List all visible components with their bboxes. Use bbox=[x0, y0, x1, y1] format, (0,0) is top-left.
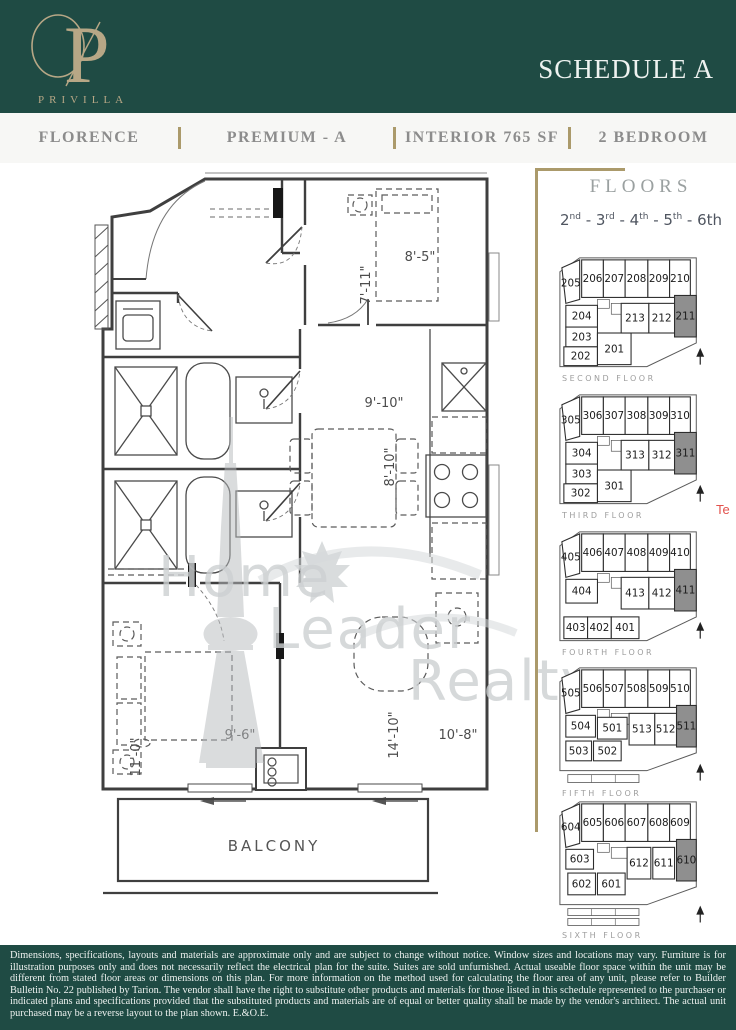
header-banner: P PRIVILLA SCHEDULE A bbox=[0, 0, 736, 113]
unit-number: 504 bbox=[571, 721, 591, 733]
unit-number: 411 bbox=[676, 585, 696, 597]
unit-number: 512 bbox=[656, 724, 676, 736]
unit-number: 305 bbox=[561, 415, 581, 427]
unit-number: 202 bbox=[571, 351, 591, 363]
unit-number: 612 bbox=[629, 858, 649, 870]
unit-number: 609 bbox=[670, 817, 690, 829]
keyplan-svg: 205206207208209210204203202201213212211 bbox=[552, 250, 720, 373]
unit-number: 209 bbox=[649, 273, 669, 285]
unit-number: 204 bbox=[572, 311, 592, 323]
balcony-strip bbox=[568, 909, 639, 916]
unit-number: 606 bbox=[604, 817, 624, 829]
unit-number: 302 bbox=[571, 488, 591, 500]
fireplace-unit bbox=[256, 748, 306, 790]
north-arrow-icon bbox=[696, 622, 704, 631]
unit-number: 510 bbox=[670, 683, 690, 695]
keyplan-svg: 305306307308309310304303302301313312311 bbox=[552, 387, 720, 510]
unit-number: 308 bbox=[627, 410, 647, 422]
spec-bar: FLORENCE PREMIUM - A INTERIOR 765 SF 2 B… bbox=[0, 113, 736, 163]
unit-number: 511 bbox=[677, 721, 697, 733]
unit-number: 206 bbox=[583, 273, 603, 285]
unit-number: 406 bbox=[583, 547, 603, 559]
privilla-logo: P PRIVILLA bbox=[24, 6, 164, 110]
floors-panel: FLOORS 2nd - 3rd - 4th - 5th - 6th 20520… bbox=[548, 166, 734, 946]
unit-number: 401 bbox=[615, 622, 635, 634]
unit-number: 404 bbox=[572, 586, 592, 598]
spec-item-area: INTERIOR 765 SF bbox=[396, 129, 568, 147]
unit-number: 603 bbox=[570, 854, 590, 866]
unit-number: 310 bbox=[670, 410, 690, 422]
unit-number: 301 bbox=[604, 480, 624, 492]
dim-living-width: 10'-8" bbox=[438, 728, 477, 743]
wall-tv bbox=[276, 633, 284, 659]
unit-number: 405 bbox=[561, 552, 581, 564]
unit-number: 402 bbox=[590, 622, 610, 634]
unit-number: 413 bbox=[625, 588, 645, 600]
dim-bedroom2-width: 8'-5" bbox=[405, 250, 436, 265]
keyplan-third-floor: 305306307308309310304303302301313312311 … bbox=[552, 387, 728, 520]
keyplan-svg: 505506507508509510504501503502513512511 bbox=[552, 660, 720, 788]
unit-number: 412 bbox=[652, 588, 672, 600]
unit-number: 502 bbox=[597, 745, 617, 757]
spec-item-series: PREMIUM - A bbox=[181, 129, 393, 147]
north-arrow-icon bbox=[696, 348, 704, 357]
unit-number: 210 bbox=[670, 273, 690, 285]
unit-number: 203 bbox=[572, 331, 592, 343]
unit-number: 505 bbox=[561, 688, 581, 700]
keyplan-fifth-floor: 505506507508509510504501503502513512511 … bbox=[552, 660, 728, 798]
unit-number: 211 bbox=[676, 311, 696, 323]
keyplan-second-floor: 205206207208209210204203202201213212211 … bbox=[552, 250, 728, 383]
unit-number: 311 bbox=[676, 448, 696, 460]
unit-number: 307 bbox=[604, 410, 624, 422]
unit-number: 610 bbox=[677, 855, 697, 867]
unit-number: 410 bbox=[670, 547, 690, 559]
unit-number: 309 bbox=[649, 410, 669, 422]
unit-number: 212 bbox=[652, 313, 672, 325]
unit-number: 509 bbox=[649, 683, 669, 695]
logo-monogram: P bbox=[24, 6, 164, 92]
unit-number: 409 bbox=[649, 547, 669, 559]
floors-ordinals: 2nd - 3rd - 4th - 5th - 6th bbox=[548, 211, 734, 229]
unit-number: 601 bbox=[601, 878, 621, 890]
floor-plan-drawing: 8'-5" 7'-11" 9'-10" 8'-10" 9'-6" 11'-0" … bbox=[60, 165, 520, 907]
unit-number: 607 bbox=[627, 817, 647, 829]
floor-label: FOURTH FLOOR bbox=[562, 648, 728, 657]
unit-number: 602 bbox=[572, 878, 592, 890]
unit-number: 503 bbox=[569, 745, 589, 757]
logo-wordmark: PRIVILLA bbox=[38, 94, 188, 106]
disclaimer-text: Dimensions, specifications, layouts and … bbox=[0, 945, 736, 1025]
unit-number: 313 bbox=[625, 450, 645, 462]
unit-number: 608 bbox=[649, 817, 669, 829]
bedroom1-door-leaf bbox=[188, 563, 196, 587]
unit-number: 604 bbox=[561, 822, 581, 834]
schedule-page: P PRIVILLA SCHEDULE A FLORENCE PREMIUM -… bbox=[0, 0, 736, 1030]
north-arrow-icon bbox=[696, 906, 704, 915]
unit-number: 303 bbox=[572, 468, 592, 480]
unit-number: 605 bbox=[583, 817, 603, 829]
unit-number: 501 bbox=[602, 723, 622, 735]
balcony-strip bbox=[568, 919, 639, 926]
unit-number: 306 bbox=[583, 410, 603, 422]
north-arrow-icon bbox=[696, 764, 704, 773]
unit-number: 611 bbox=[654, 858, 674, 870]
unit-number: 508 bbox=[627, 683, 647, 695]
edge-note: Te bbox=[716, 502, 730, 517]
page-title: SCHEDULE A bbox=[538, 54, 714, 85]
floor-label: SIXTH FLOOR bbox=[562, 931, 728, 940]
keyplan-fourth-floor: 405406407408409410404403402401413412411 … bbox=[552, 524, 728, 657]
unit-number: 205 bbox=[561, 278, 581, 290]
floors-title: FLOORS bbox=[548, 176, 734, 198]
footer-banner: Dimensions, specifications, layouts and … bbox=[0, 945, 736, 1030]
foyer-door-leaf bbox=[273, 188, 283, 218]
unit-number: 304 bbox=[572, 448, 592, 460]
hatched-wall bbox=[95, 225, 108, 329]
spec-item-bedrooms: 2 BEDROOM bbox=[571, 129, 736, 147]
unit-number: 201 bbox=[604, 343, 624, 355]
balcony-strip bbox=[568, 775, 639, 783]
floor-label: SECOND FLOOR bbox=[562, 374, 728, 383]
keyplan-sixth-floor: 604605606607608609603602601612611610 SIX… bbox=[552, 794, 728, 940]
unit-number: 213 bbox=[625, 313, 645, 325]
floor-plan: 8'-5" 7'-11" 9'-10" 8'-10" 9'-6" 11'-0" … bbox=[60, 165, 520, 907]
spec-item-model: FLORENCE bbox=[0, 129, 178, 147]
balcony-label: BALCONY bbox=[228, 837, 321, 855]
north-arrow-icon bbox=[696, 485, 704, 494]
dim-bedroom2-height: 7'-11" bbox=[359, 265, 374, 304]
unit-number: 312 bbox=[652, 450, 672, 462]
unit-number: 507 bbox=[604, 683, 624, 695]
unit-number: 403 bbox=[566, 622, 586, 634]
unit-number: 407 bbox=[604, 547, 624, 559]
unit-number: 513 bbox=[632, 724, 652, 736]
keyplan-svg: 604605606607608609603602601612611610 bbox=[552, 794, 720, 930]
unit-number: 408 bbox=[627, 547, 647, 559]
dim-living-height: 14'-10" bbox=[387, 711, 402, 758]
unit-number: 208 bbox=[627, 273, 647, 285]
dim-bedroom1-height: 11'-0" bbox=[129, 737, 144, 776]
unit-number: 207 bbox=[604, 273, 624, 285]
unit-number: 506 bbox=[583, 683, 603, 695]
svg-text:P: P bbox=[64, 9, 110, 92]
floor-label: THIRD FLOOR bbox=[562, 511, 728, 520]
keyplan-svg: 405406407408409410404403402401413412411 bbox=[552, 524, 720, 647]
dim-kitchen-width: 9'-10" bbox=[364, 396, 403, 411]
dim-kitchen-height: 8'-10" bbox=[383, 447, 398, 486]
